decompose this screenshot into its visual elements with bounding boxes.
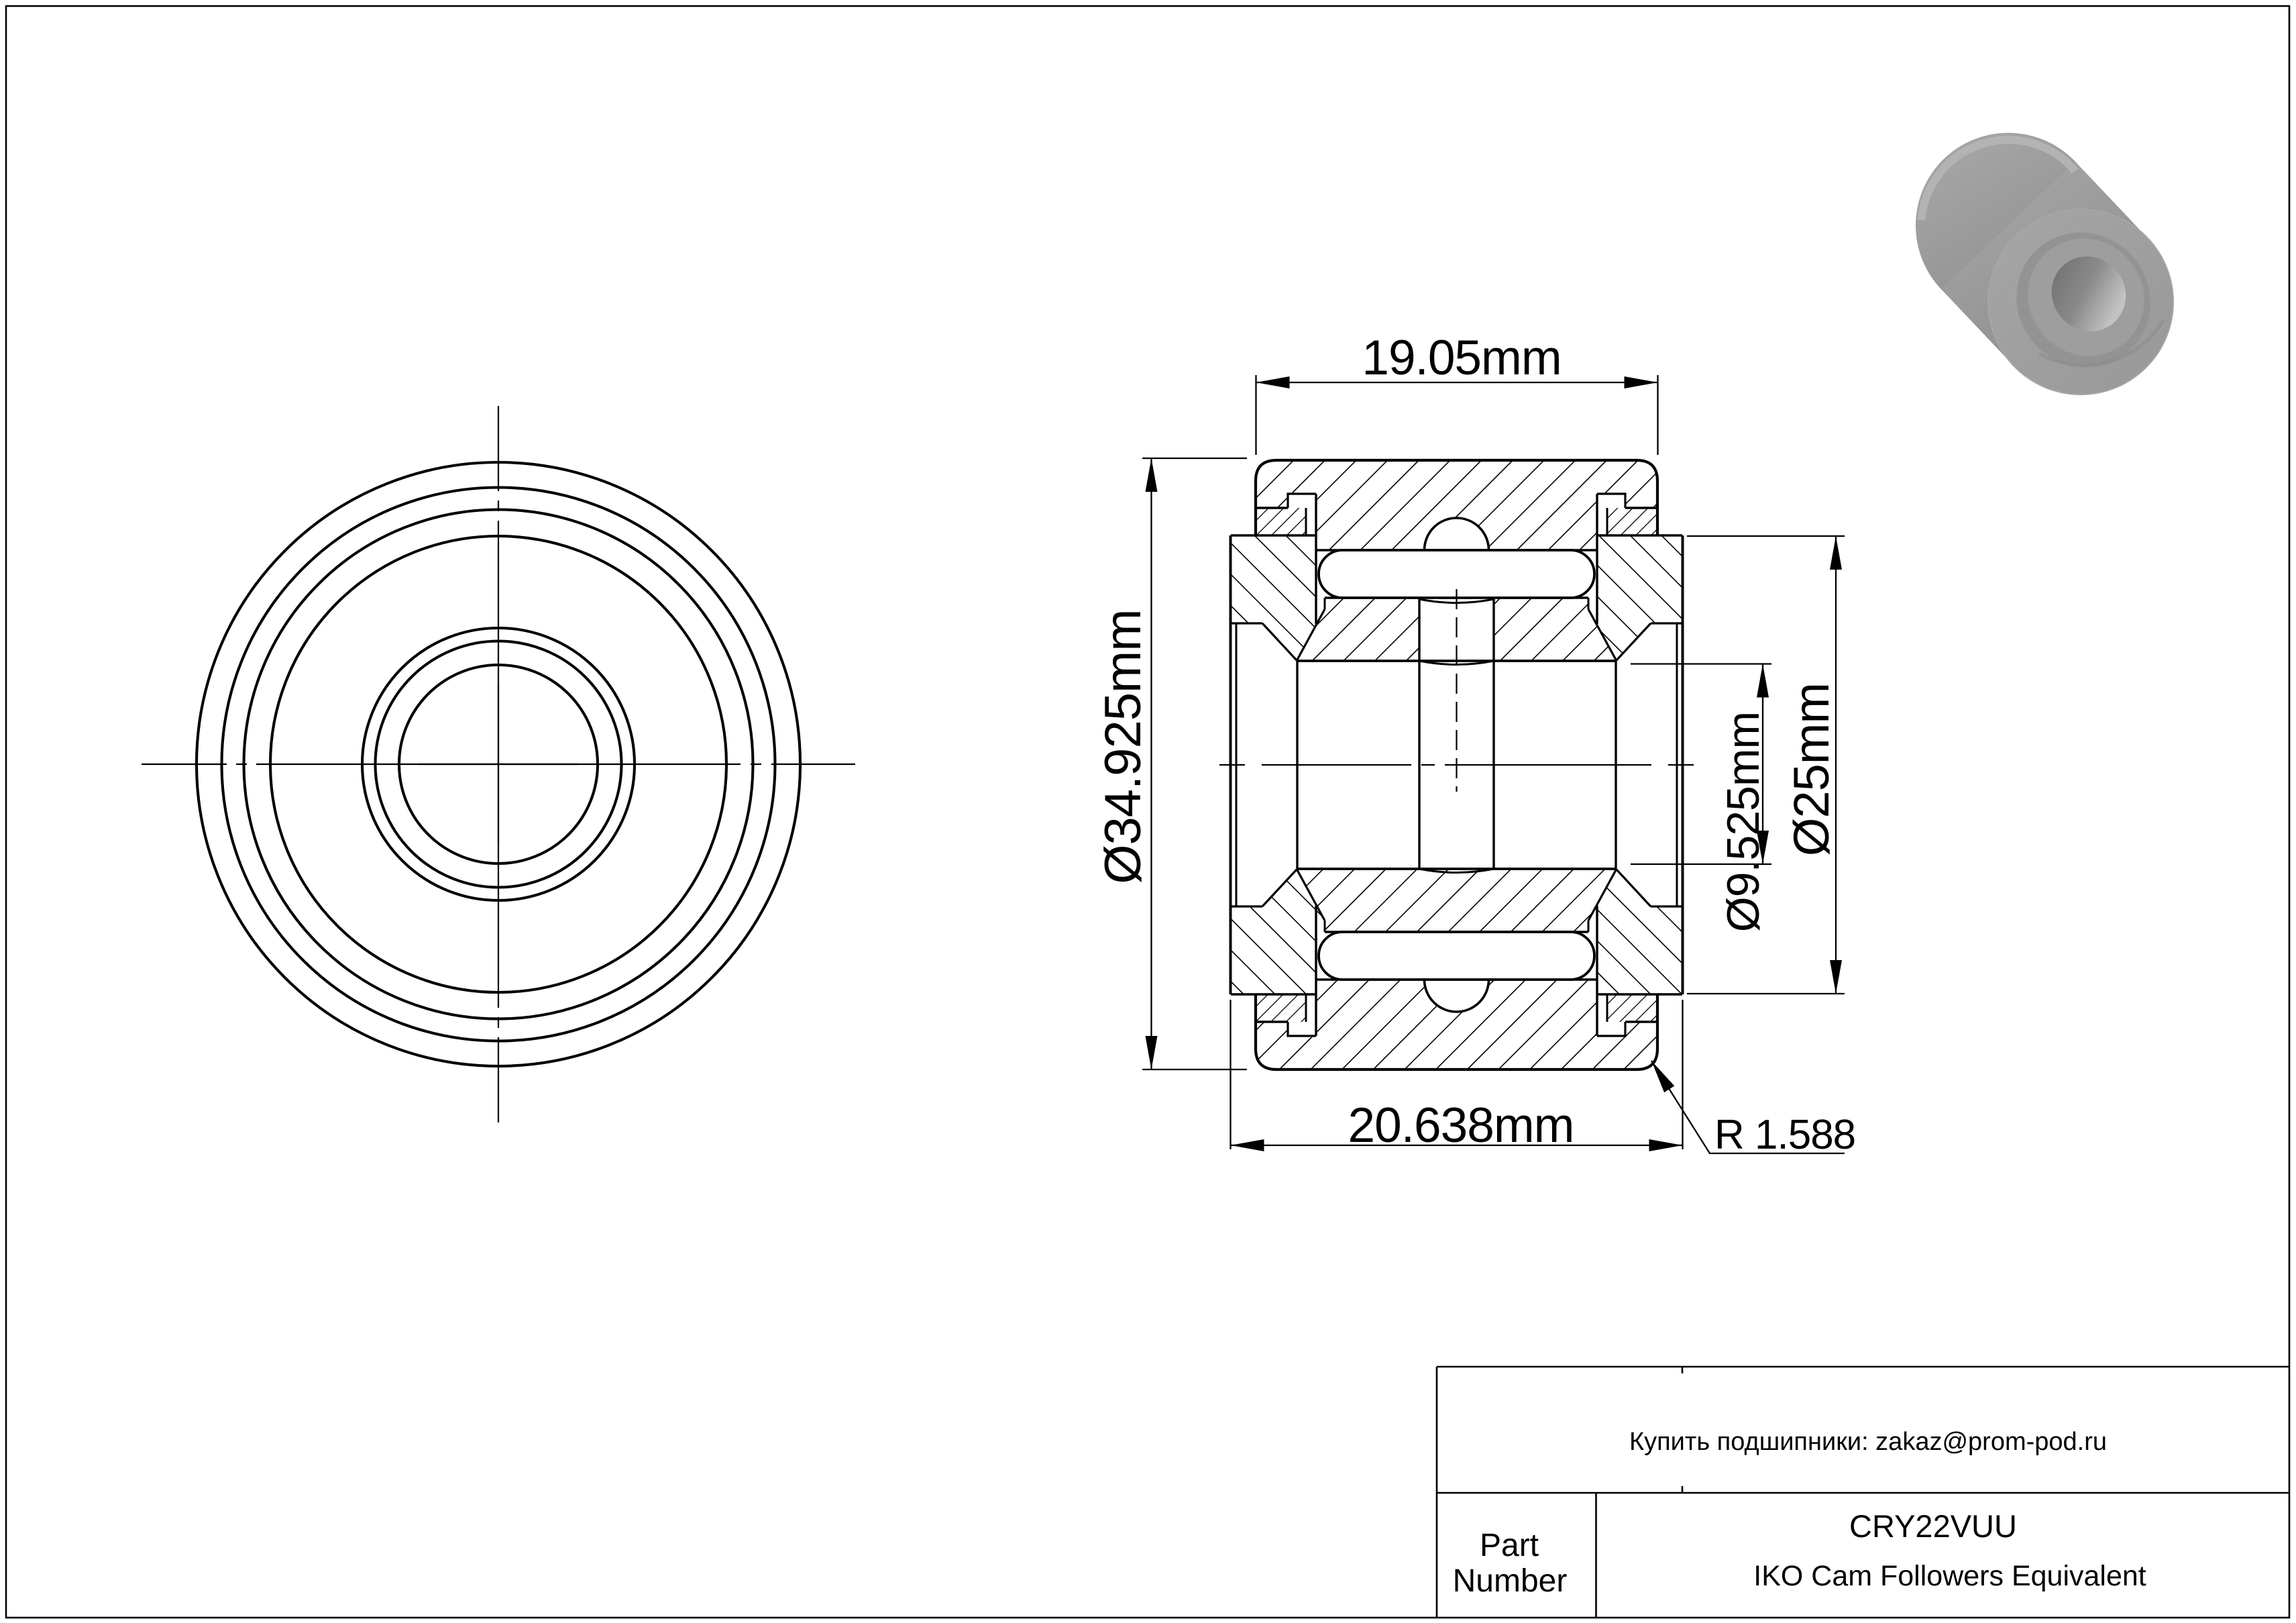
svg-text:19.05mm: 19.05mm xyxy=(1362,331,1561,385)
svg-text:Ø25mm: Ø25mm xyxy=(1784,683,1839,856)
svg-text:CRY22VUU: CRY22VUU xyxy=(1849,1508,2017,1544)
svg-text:Купить подшипники: zakaz@prom-: Купить подшипники: zakaz@prom-pod.ru xyxy=(1629,1428,2107,1456)
svg-text:Ø9.525mm: Ø9.525mm xyxy=(1718,712,1769,932)
svg-text:Part: Part xyxy=(1480,1528,1539,1563)
svg-text:IKO Cam Followers Equivalent: IKO Cam Followers Equivalent xyxy=(1753,1560,2146,1592)
svg-text:Number: Number xyxy=(1453,1563,1568,1599)
svg-text:R 1.588: R 1.588 xyxy=(1714,1112,1855,1158)
svg-text:Ø34.925mm: Ø34.925mm xyxy=(1095,609,1152,884)
svg-text:20.638mm: 20.638mm xyxy=(1348,1098,1574,1153)
